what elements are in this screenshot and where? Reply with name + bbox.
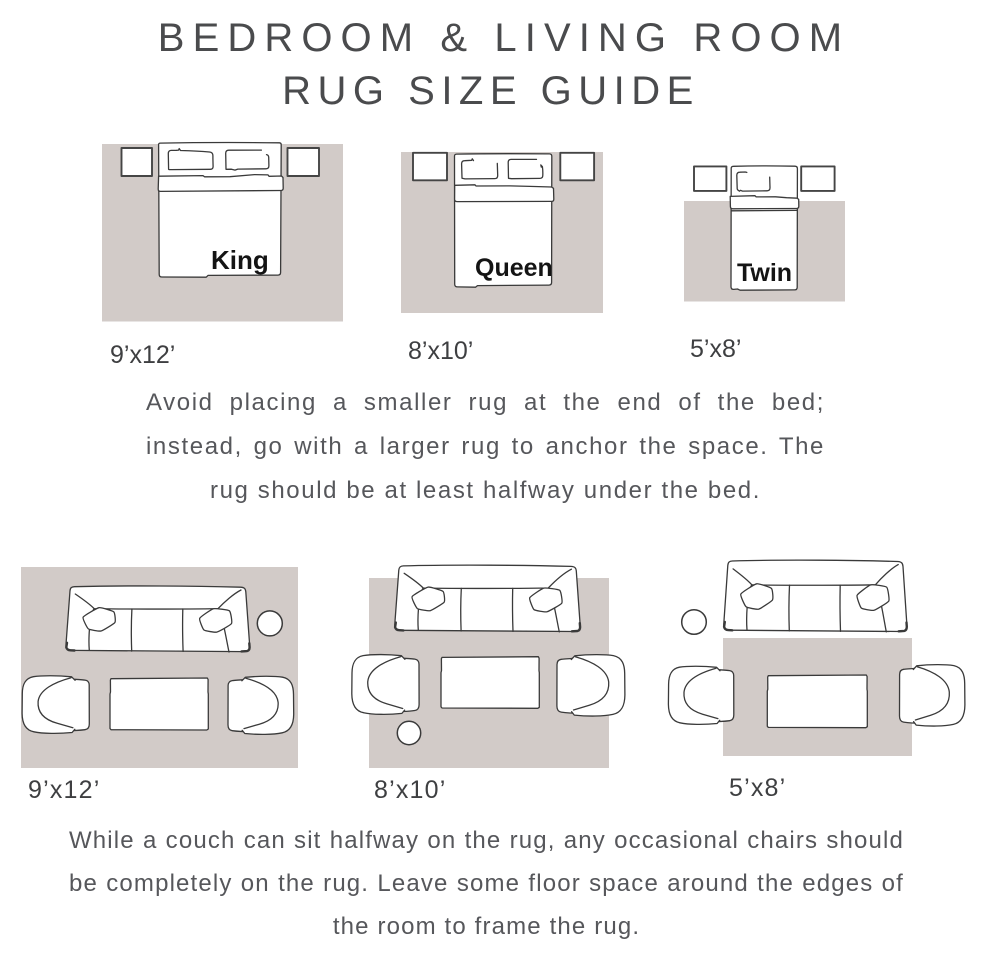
svg-text:Twin: Twin: [737, 259, 792, 287]
svg-text:Queen: Queen: [475, 254, 553, 282]
svg-text:King: King: [211, 245, 269, 275]
